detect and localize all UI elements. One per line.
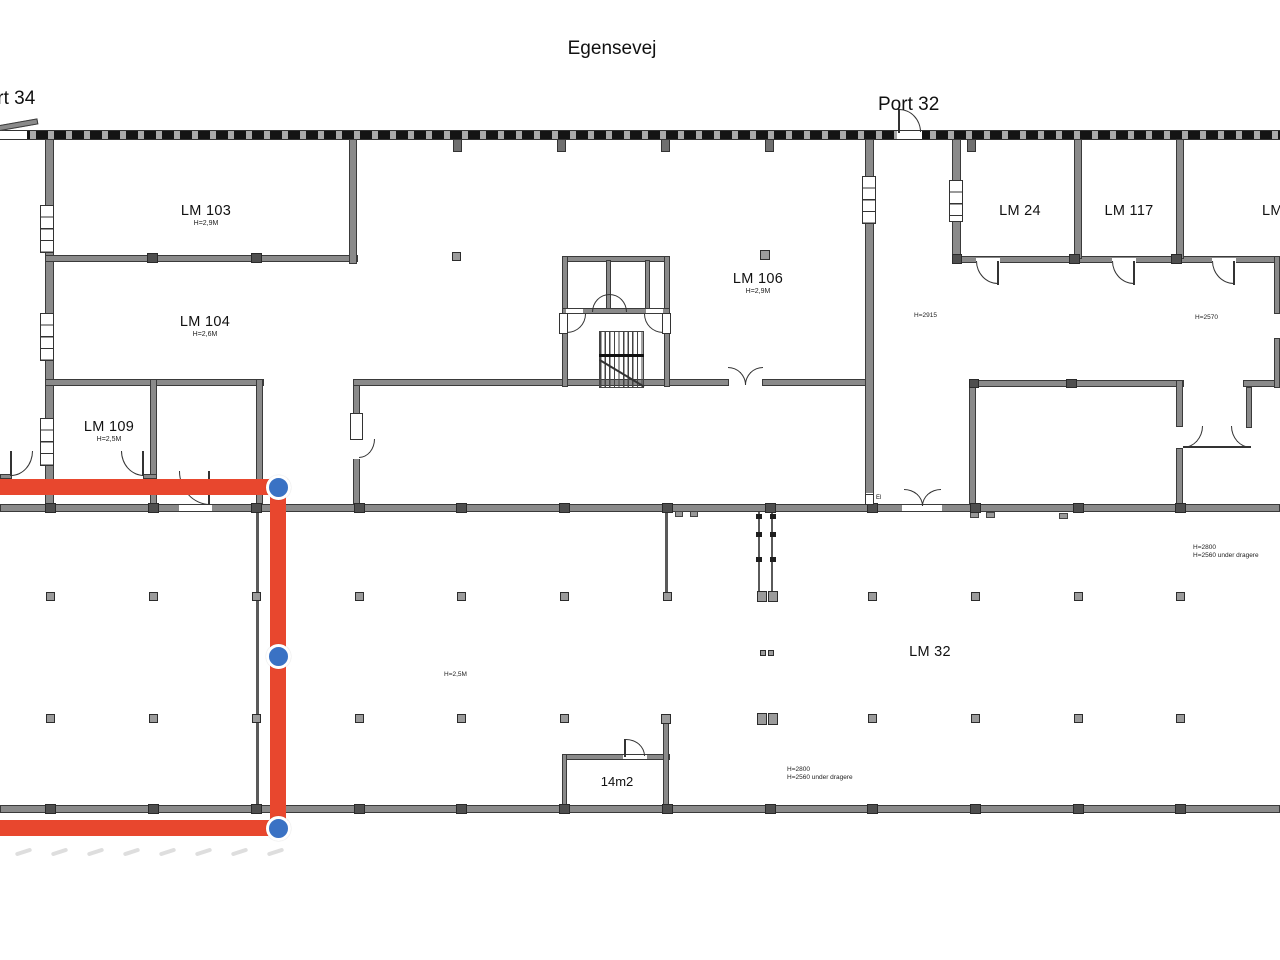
room-label-14m2: 14m2 bbox=[601, 774, 634, 789]
wall-pillar bbox=[1175, 503, 1186, 513]
height-note-mid-right-line1: H=2800 bbox=[1193, 544, 1259, 552]
wall-pillar bbox=[1073, 503, 1084, 513]
exterior-wall-north bbox=[0, 130, 1280, 140]
column bbox=[149, 592, 158, 601]
wall-pillar bbox=[456, 503, 467, 513]
door-arc bbox=[121, 451, 144, 476]
wall-pillar bbox=[662, 804, 673, 814]
column bbox=[452, 252, 461, 261]
column bbox=[252, 714, 261, 723]
room-label-lm103: LM 103 bbox=[181, 203, 231, 219]
column bbox=[1176, 714, 1185, 723]
wall-pillar bbox=[765, 139, 774, 152]
wall-tick bbox=[675, 511, 683, 517]
column bbox=[971, 714, 980, 723]
door-arc bbox=[1231, 426, 1251, 448]
room-label-lm24: LM 24 bbox=[999, 203, 1041, 219]
door-arc bbox=[976, 261, 998, 284]
wall-pillar bbox=[251, 804, 262, 814]
door-arc bbox=[904, 489, 923, 506]
wall-pillar bbox=[1175, 804, 1186, 814]
door-gap bbox=[897, 131, 922, 139]
faint-mark bbox=[267, 847, 284, 856]
height-note-mid-right-line2: H=2560 under dragere bbox=[1193, 552, 1259, 560]
wall bbox=[562, 256, 670, 262]
door-leaf bbox=[624, 739, 626, 757]
door-arc bbox=[11, 451, 33, 476]
wall-pillar bbox=[662, 503, 673, 513]
wall bbox=[0, 805, 1280, 813]
wall bbox=[1074, 139, 1082, 259]
wall-pillar bbox=[148, 804, 159, 814]
window bbox=[350, 413, 363, 440]
wall-tick bbox=[1059, 513, 1068, 519]
route-segment-top[interactable] bbox=[0, 479, 288, 495]
room-label-lm-edge: LM bbox=[1262, 203, 1280, 219]
wall bbox=[562, 754, 567, 807]
column bbox=[1176, 592, 1185, 601]
wall bbox=[771, 512, 773, 593]
faint-mark bbox=[123, 847, 140, 856]
room-height-lm103: H=2,9M bbox=[194, 220, 219, 227]
wall-pillar bbox=[557, 139, 566, 152]
window bbox=[40, 205, 54, 253]
door-arc bbox=[644, 314, 663, 333]
door-leaf bbox=[10, 451, 12, 476]
wall-pillar bbox=[969, 379, 979, 388]
faint-mark bbox=[231, 847, 248, 856]
room-label-lm104: LM 104 bbox=[180, 314, 230, 330]
wall-tick bbox=[690, 511, 698, 517]
column bbox=[355, 592, 364, 601]
column bbox=[46, 714, 55, 723]
column bbox=[760, 650, 766, 656]
staircase-landing bbox=[599, 354, 644, 357]
height-note-2570: H=2570 bbox=[1195, 314, 1218, 322]
wall-connector bbox=[756, 514, 762, 519]
column bbox=[768, 591, 778, 602]
door-arc bbox=[1112, 261, 1134, 284]
wall-connector bbox=[756, 557, 762, 562]
door-gap bbox=[179, 505, 212, 511]
door-leaf bbox=[1203, 446, 1231, 448]
door-gap bbox=[0, 131, 27, 139]
column bbox=[971, 592, 980, 601]
route-node-3[interactable] bbox=[266, 816, 291, 841]
wall-connector bbox=[770, 514, 776, 519]
column bbox=[46, 592, 55, 601]
column bbox=[252, 592, 261, 601]
wall bbox=[1274, 256, 1280, 314]
door-leaf bbox=[997, 261, 999, 285]
column bbox=[760, 250, 770, 260]
door-leaf bbox=[1133, 261, 1135, 285]
wall-pillar bbox=[1073, 804, 1084, 814]
wall-pillar bbox=[251, 253, 262, 263]
wall bbox=[762, 379, 870, 386]
wall-pillar bbox=[251, 503, 262, 513]
wall-connector bbox=[756, 532, 762, 537]
column bbox=[1074, 592, 1083, 601]
window bbox=[949, 180, 963, 222]
column bbox=[149, 714, 158, 723]
wall-pillar bbox=[45, 804, 56, 814]
route-node-1[interactable] bbox=[266, 475, 291, 500]
height-note-bottom-line1: H=2800 bbox=[787, 766, 853, 774]
window bbox=[40, 418, 54, 466]
door-arc bbox=[922, 489, 941, 506]
wall-pillar bbox=[456, 804, 467, 814]
room-label-lm106: LM 106 bbox=[733, 271, 783, 287]
door-arc bbox=[745, 367, 763, 385]
staircase bbox=[599, 331, 644, 388]
wall-tick bbox=[986, 512, 995, 518]
wall bbox=[1176, 139, 1184, 259]
wall bbox=[1246, 387, 1252, 428]
wall-pillar bbox=[453, 139, 462, 152]
room-label-lm117: LM 117 bbox=[1104, 203, 1153, 219]
faint-mark bbox=[195, 847, 212, 856]
column bbox=[661, 714, 671, 724]
door-arc bbox=[359, 439, 375, 458]
wall-pillar bbox=[661, 139, 670, 152]
wall-pillar bbox=[1069, 254, 1080, 264]
wall bbox=[353, 379, 729, 386]
wall-pillar bbox=[867, 804, 878, 814]
door-arc bbox=[592, 294, 627, 312]
door-arc bbox=[1183, 426, 1203, 448]
wall bbox=[256, 512, 259, 806]
height-note-bottom-line2: H=2560 under dragere bbox=[787, 774, 853, 782]
wall-pillar bbox=[559, 804, 570, 814]
wall-pillar bbox=[354, 503, 365, 513]
room-label-lm109: LM 109 bbox=[84, 419, 134, 435]
wall bbox=[663, 720, 669, 806]
wall-pillar bbox=[970, 503, 981, 513]
wall-pillar bbox=[970, 804, 981, 814]
room-label-lm32: LM 32 bbox=[909, 644, 951, 660]
wall-pillar bbox=[765, 804, 776, 814]
wall bbox=[969, 380, 976, 511]
column bbox=[560, 714, 569, 723]
window bbox=[862, 176, 876, 224]
window bbox=[40, 313, 54, 361]
wall-pillar bbox=[1171, 254, 1182, 264]
room-height-lm106: H=2,9M bbox=[746, 288, 771, 295]
door-leaf bbox=[1183, 446, 1203, 448]
el-box bbox=[865, 494, 874, 505]
wall-connector bbox=[770, 557, 776, 562]
column bbox=[457, 592, 466, 601]
door-arc bbox=[728, 367, 746, 385]
height-note-bottom: H=2800 H=2560 under dragere bbox=[787, 766, 853, 782]
door-leaf bbox=[1233, 261, 1235, 285]
column bbox=[663, 592, 672, 601]
door-leaf bbox=[1231, 446, 1251, 448]
faint-mark bbox=[51, 847, 68, 856]
door-arc bbox=[1212, 261, 1234, 284]
column bbox=[768, 650, 774, 656]
wall-pillar bbox=[1066, 379, 1077, 388]
column bbox=[868, 592, 877, 601]
height-note-25m: H=2,5M bbox=[444, 671, 467, 679]
wall bbox=[758, 512, 760, 593]
faint-mark bbox=[159, 847, 176, 856]
wall bbox=[1176, 380, 1183, 427]
wall-pillar bbox=[952, 254, 962, 264]
column bbox=[868, 714, 877, 723]
height-note-mid-right: H=2800 H=2560 under dragere bbox=[1193, 544, 1259, 560]
el-box-label: El bbox=[876, 495, 881, 501]
door-gap bbox=[646, 309, 663, 313]
wall-pillar bbox=[354, 804, 365, 814]
door-arc bbox=[626, 739, 645, 756]
door-leaf bbox=[142, 451, 144, 476]
faint-mark bbox=[87, 847, 104, 856]
window bbox=[662, 313, 671, 334]
column bbox=[457, 714, 466, 723]
wall bbox=[349, 139, 357, 264]
column bbox=[1074, 714, 1083, 723]
wall-pillar bbox=[45, 503, 56, 513]
port-32-label: Port 32 bbox=[878, 94, 939, 116]
wall-pillar bbox=[148, 503, 159, 513]
wall-pillar bbox=[765, 503, 776, 513]
wall bbox=[645, 260, 650, 311]
port-34-label: Port 34 bbox=[0, 88, 35, 110]
wall bbox=[665, 512, 668, 594]
faint-mark bbox=[15, 847, 32, 856]
wall-pillar bbox=[967, 139, 976, 152]
column bbox=[757, 591, 767, 602]
door-arc bbox=[567, 314, 586, 333]
door-gap bbox=[566, 309, 583, 313]
wall-connector bbox=[770, 532, 776, 537]
wall bbox=[45, 255, 358, 262]
column bbox=[560, 592, 569, 601]
column bbox=[757, 713, 767, 725]
height-note-2915: H=2915 bbox=[914, 312, 937, 320]
route-segment-bottom[interactable] bbox=[0, 820, 288, 836]
street-label: Egensevej bbox=[568, 38, 657, 60]
route-node-2[interactable] bbox=[266, 644, 291, 669]
column bbox=[355, 714, 364, 723]
room-height-lm104: H=2,6M bbox=[193, 331, 218, 338]
wall bbox=[1176, 448, 1183, 510]
wall bbox=[562, 754, 670, 760]
column bbox=[768, 713, 778, 725]
floor-plan: Egensevej Port 34 Port 32 LM 103 H=2,9M … bbox=[0, 0, 1280, 960]
wall-pillar bbox=[147, 253, 158, 263]
room-height-lm109: H=2,5M bbox=[97, 436, 122, 443]
wall bbox=[1274, 338, 1280, 388]
wall-pillar bbox=[559, 503, 570, 513]
